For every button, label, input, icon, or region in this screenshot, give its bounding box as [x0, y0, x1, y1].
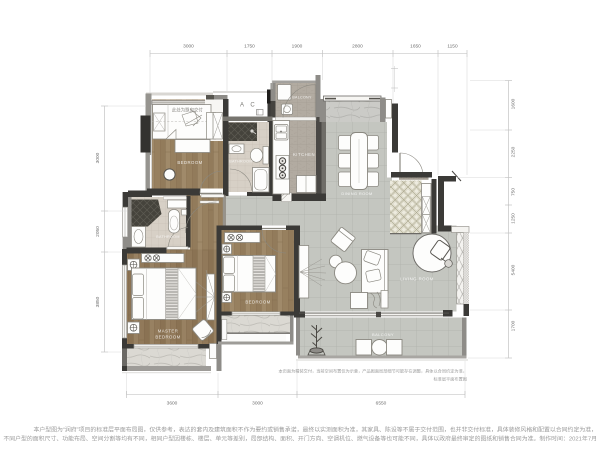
svg-text:标准层平面布置图: 标准层平面布置图	[433, 376, 467, 383]
svg-text:3000: 3000	[183, 44, 194, 50]
svg-text:此处为飘窗交付: 此处为飘窗交付	[172, 107, 203, 114]
svg-text:1650: 1650	[410, 44, 421, 50]
svg-text:A C: A C	[240, 103, 257, 109]
svg-text:1750: 1750	[244, 44, 255, 50]
svg-text:LIVING ROOM: LIVING ROOM	[400, 277, 434, 282]
svg-text:本页面为精装交付，当前空间布置仅为示意，产品图面局部细节可能: 本页面为精装交付，当前空间布置仅为示意，产品图面局部细节可能存在调整，具体以合同…	[279, 368, 467, 375]
svg-text:3600: 3600	[167, 401, 178, 407]
svg-text:本户型图为“润府”项目的标准层平面布局图，仅供参考，表达的套: 本户型图为“润府”项目的标准层平面布局图，仅供参考，表达的套内及建筑面积不作为要…	[33, 426, 597, 434]
svg-text:BALCONY: BALCONY	[292, 96, 312, 100]
svg-text:2050: 2050	[95, 226, 101, 237]
svg-text:6550: 6550	[376, 401, 387, 407]
svg-text:MASTER: MASTER	[158, 329, 179, 334]
svg-text:BEDROOM: BEDROOM	[177, 160, 202, 165]
svg-text:KITCHEN: KITCHEN	[293, 152, 315, 157]
svg-text:1250: 1250	[511, 213, 517, 224]
svg-text:1900: 1900	[292, 44, 303, 50]
svg-text:DINING ROOM: DINING ROOM	[341, 191, 372, 196]
svg-text:BATHROOM: BATHROOM	[229, 160, 252, 164]
svg-text:5400: 5400	[511, 264, 517, 275]
svg-text:1600: 1600	[511, 98, 517, 109]
svg-text:BALCONY: BALCONY	[372, 332, 394, 337]
svg-text:2800: 2800	[352, 44, 363, 50]
svg-text:1700: 1700	[511, 320, 517, 331]
svg-text:750: 750	[511, 188, 517, 196]
svg-text:3000: 3000	[252, 401, 263, 407]
svg-text:BEDROOM: BEDROOM	[155, 335, 180, 340]
svg-text:2250: 2250	[511, 146, 517, 157]
svg-text:3850: 3850	[95, 296, 101, 307]
svg-text:不同户型的面积尺寸、功能布局、空间分割等均有不同，相同户型因: 不同户型的面积尺寸、功能布局、空间分割等均有不同，相同户型因楼栋、楼层、单元等差…	[3, 435, 597, 443]
svg-text:1150: 1150	[447, 44, 458, 50]
svg-text:BATHROOM: BATHROOM	[156, 235, 179, 239]
svg-text:BEDROOM: BEDROOM	[245, 300, 270, 305]
svg-text:3000: 3000	[95, 152, 101, 163]
